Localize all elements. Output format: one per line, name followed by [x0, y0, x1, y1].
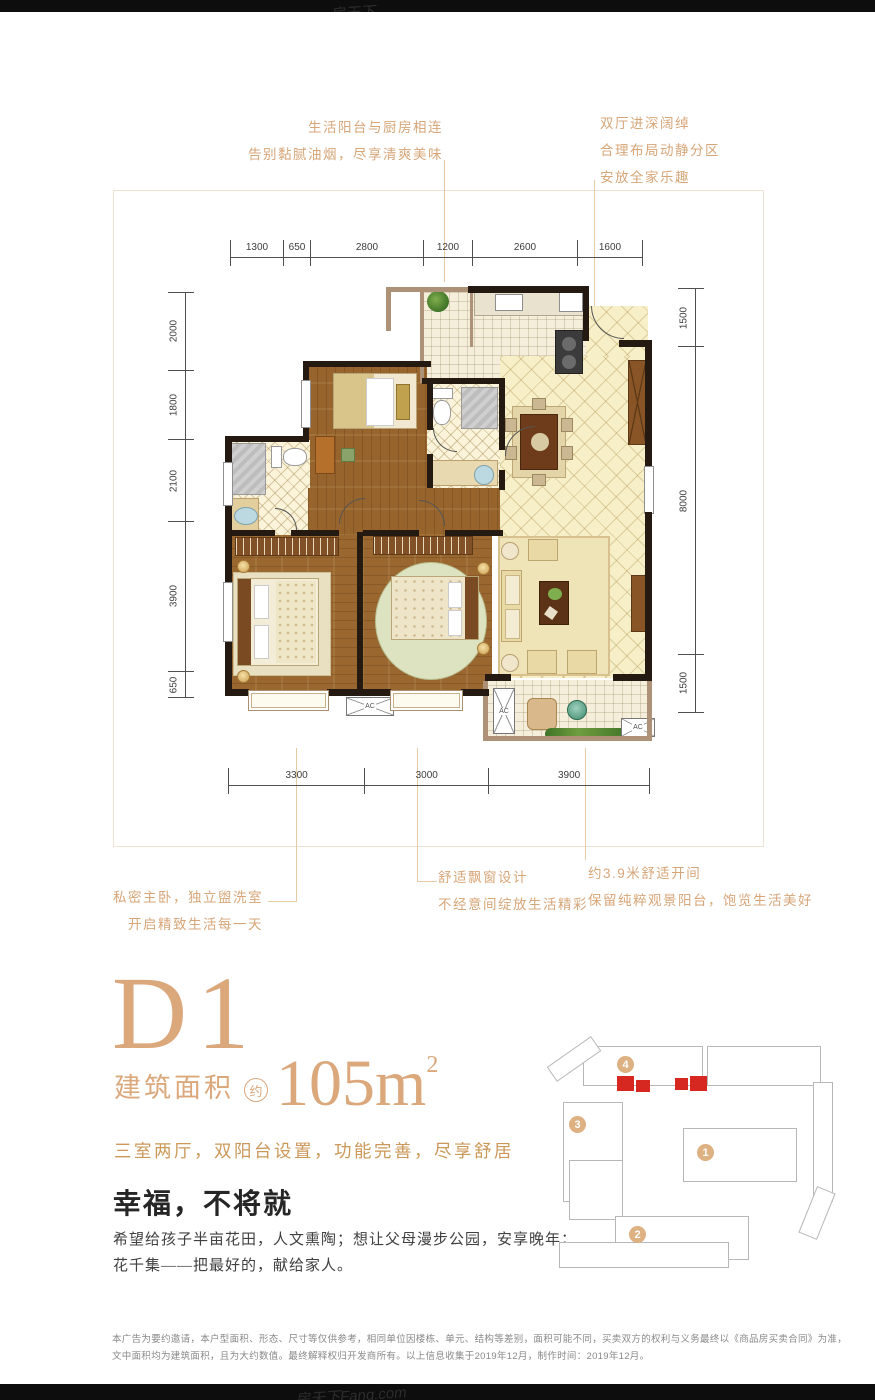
vanity — [229, 498, 259, 532]
balcony-rail — [647, 681, 652, 740]
dim-label: 3300 — [285, 770, 307, 781]
wall — [327, 689, 391, 696]
dim-segment: 2600 — [472, 240, 577, 266]
wall — [613, 674, 652, 681]
dim-segment: 1300 — [230, 240, 283, 266]
shower-area — [461, 387, 498, 429]
wardrobe — [235, 537, 339, 556]
wall — [468, 286, 588, 293]
dim-label: 1800 — [169, 394, 180, 416]
wall — [427, 454, 433, 488]
dim-label: 2100 — [169, 470, 180, 492]
hallway — [308, 488, 500, 536]
dim-label: 650 — [169, 676, 180, 693]
dim-segment: 1500 — [678, 654, 704, 713]
wall — [445, 530, 503, 536]
sofa — [501, 570, 522, 642]
callout-bay-window: 舒适飘窗设计 不经意间绽放生活精彩 — [438, 864, 588, 918]
window — [644, 466, 654, 514]
building-number-2: 2 — [629, 1226, 646, 1243]
stool — [341, 448, 355, 462]
wall — [303, 361, 431, 367]
wall — [461, 689, 489, 696]
dim-segment: 3000 — [364, 768, 488, 794]
stove — [555, 330, 583, 374]
armchair — [567, 650, 597, 674]
dining-chair — [532, 398, 546, 410]
watermark-bottom: 房天下Fang.com — [294, 1384, 407, 1400]
wall — [422, 378, 505, 384]
wall — [470, 292, 473, 347]
bedside-lamp — [477, 562, 490, 575]
area-exponent: 2 — [426, 1052, 438, 1113]
dim-segment: 3300 — [228, 768, 364, 794]
callout-line: 私密主卧，独立盥洗室 — [113, 884, 263, 911]
callout-line: 约3.9米舒适开间 — [588, 860, 813, 887]
window — [301, 380, 311, 428]
bedside-lamp — [477, 642, 490, 655]
wall — [363, 530, 419, 536]
lounge-chair — [527, 698, 557, 730]
callout-line: 告别黏腻油烟，尽享清爽美味 — [248, 141, 443, 168]
dim-segment: 1500 — [678, 288, 704, 346]
callout-view-balcony: 约3.9米舒适开间 保留纯粹观景阳台，饱览生活美好 — [588, 860, 813, 914]
dim-segment: 1200 — [423, 240, 472, 266]
dining-chair — [561, 418, 573, 432]
highlight-unit — [636, 1080, 650, 1092]
slogan-body-line: 希望给孩子半亩花田，人文熏陶；想让父母漫步公园，安享晚年； — [113, 1228, 577, 1249]
dim-label: 3900 — [169, 585, 180, 607]
dim-label: 8000 — [679, 489, 690, 511]
kitchen-sink — [495, 294, 523, 311]
unit-tagline: 三室两厅，双阳台设置，功能完善，尽享舒居 — [114, 1138, 514, 1163]
unit-name: D1 — [112, 962, 259, 1066]
wall — [386, 287, 472, 292]
ac-label: AC — [364, 703, 376, 710]
wall — [583, 286, 589, 341]
plant-icon — [427, 291, 449, 312]
toilet-tank — [271, 446, 282, 468]
bedside-lamp — [237, 670, 250, 683]
callout-double-hall: 双厅进深阔绰 合理布局动静分区 安放全家乐趣 — [600, 110, 720, 191]
dim-label: 650 — [289, 242, 306, 253]
balcony-rail — [483, 736, 652, 741]
dim-segment: 2800 — [310, 240, 423, 266]
callout-line: 合理布局动静分区 — [600, 137, 720, 164]
dim-segment: 2000 — [168, 292, 194, 370]
second-bed — [391, 576, 479, 640]
ac-label: AC — [498, 708, 510, 715]
wall — [225, 436, 309, 442]
side-table — [501, 654, 519, 672]
wall — [499, 378, 505, 450]
floor-plan: AC AC AC — [215, 278, 658, 748]
dim-segment: 2100 — [168, 439, 194, 520]
dim-segment: 1800 — [168, 370, 194, 440]
area-row: 建筑面积 约 105m 2 — [114, 1052, 438, 1113]
plant-icon — [567, 700, 587, 720]
window — [223, 462, 233, 506]
bedside-lamp — [237, 560, 250, 573]
dim-label: 1500 — [679, 307, 690, 329]
dim-label: 3000 — [416, 770, 438, 781]
area-value: 105m — [276, 1054, 426, 1113]
building-number-3: 3 — [569, 1116, 586, 1133]
dining-chair — [561, 446, 573, 460]
dimension-row-left: 2000180021003900650 — [168, 292, 194, 698]
wall — [645, 340, 652, 466]
callout-line: 生活阳台与厨房相连 — [248, 114, 443, 141]
callout-line: 安放全家乐趣 — [600, 164, 720, 191]
callout-line: 不经意间绽放生活精彩 — [438, 891, 588, 918]
dim-segment: 650 — [283, 240, 310, 266]
dim-segment: 1600 — [577, 240, 643, 266]
ac-label: AC — [632, 724, 644, 731]
wall — [225, 689, 249, 696]
highlight-unit — [675, 1078, 688, 1090]
toilet — [283, 448, 307, 466]
area-label: 建筑面积 — [114, 1066, 234, 1113]
dim-segment: 650 — [168, 671, 194, 698]
wall — [427, 378, 433, 430]
site-plan: 4 3 1 2 — [545, 1020, 860, 1300]
coffee-table — [539, 581, 569, 625]
disclaimer-line: 本广告为要约邀请，本户型面积、形态、尺寸等仅供参考，相同单位因楼栋、单元、结构等… — [112, 1331, 847, 1345]
highlight-unit — [617, 1076, 634, 1091]
bay-window — [390, 690, 463, 711]
dining-chair — [505, 418, 517, 432]
top-black-bar: 房天下 — [0, 0, 875, 12]
dim-segment: 8000 — [678, 346, 704, 653]
dim-label: 1500 — [679, 672, 690, 694]
toilet-tank — [431, 388, 453, 399]
building-number-1: 1 — [697, 1144, 714, 1161]
building-outline — [707, 1046, 821, 1086]
dim-label: 1600 — [599, 242, 621, 253]
wall — [225, 530, 275, 536]
wall — [645, 512, 652, 678]
dim-label: 1300 — [246, 242, 268, 253]
slogan-title: 幸福，不将就 — [113, 1182, 293, 1222]
area-approx-badge: 约 — [244, 1078, 268, 1102]
building-outline — [798, 1186, 835, 1240]
building-outline — [559, 1242, 729, 1268]
refrigerator — [559, 292, 583, 312]
dim-segment: 3900 — [168, 521, 194, 671]
callout-line: 舒适飘窗设计 — [438, 864, 588, 891]
ac-platform: AC — [493, 688, 515, 734]
dim-label: 1200 — [437, 242, 459, 253]
building-number-4: 4 — [617, 1056, 634, 1073]
building-outline — [569, 1160, 623, 1220]
watermark-top: 房天下 — [329, 0, 375, 12]
leader-line — [585, 748, 586, 860]
dimension-row-top: 13006502800120026001600 — [230, 240, 643, 266]
side-table — [501, 542, 519, 560]
leader-line — [417, 881, 437, 882]
window — [223, 582, 233, 642]
callout-service-balcony: 生活阳台与厨房相连 告别黏腻油烟，尽享清爽美味 — [248, 114, 443, 168]
wall — [485, 674, 511, 681]
toilet — [433, 400, 451, 425]
dim-label: 2600 — [514, 242, 536, 253]
wall — [386, 287, 391, 331]
dim-label: 2800 — [356, 242, 378, 253]
small-cabinet — [315, 436, 335, 474]
highlight-unit — [690, 1076, 707, 1091]
leader-line — [268, 901, 297, 902]
slogan-body-line: 花千集——把最好的，献给家人。 — [113, 1254, 353, 1275]
callout-master-suite: 私密主卧，独立盥洗室 开启精致生活每一天 — [113, 884, 263, 938]
callout-line: 开启精致生活每一天 — [113, 911, 263, 938]
callout-line: 双厅进深阔绰 — [600, 110, 720, 137]
dim-label: 3900 — [558, 770, 580, 781]
wall — [291, 530, 339, 536]
ac-platform: AC — [346, 697, 394, 716]
building-outline — [813, 1082, 833, 1202]
bay-window — [248, 690, 329, 711]
disclaimer-line: 文中面积均为建筑面积，且为大约数值。最终解释权归开发商所有。以上信息收集于201… — [112, 1348, 649, 1362]
vanity — [429, 460, 498, 486]
shower-area — [230, 443, 266, 495]
wall — [499, 470, 505, 490]
floorplan-poster: { "page": { "watermark_top": "房天下", "wat… — [0, 0, 875, 1400]
armchair — [527, 650, 557, 674]
master-bed — [237, 578, 319, 666]
bottom-black-bar: 房天下Fang.com — [0, 1384, 875, 1400]
dining-chair — [532, 474, 546, 486]
dimension-row-bottom: 330030003900 — [228, 768, 650, 794]
single-bed — [333, 373, 417, 429]
wall — [420, 287, 424, 383]
wall — [357, 532, 363, 694]
armchair — [528, 539, 558, 561]
wardrobe — [373, 536, 473, 555]
callout-line: 保留纯粹观景阳台，饱览生活美好 — [588, 887, 813, 914]
dim-segment: 3900 — [488, 768, 650, 794]
dim-label: 2000 — [169, 320, 180, 342]
dimension-row-right: 150080001500 — [678, 288, 704, 713]
